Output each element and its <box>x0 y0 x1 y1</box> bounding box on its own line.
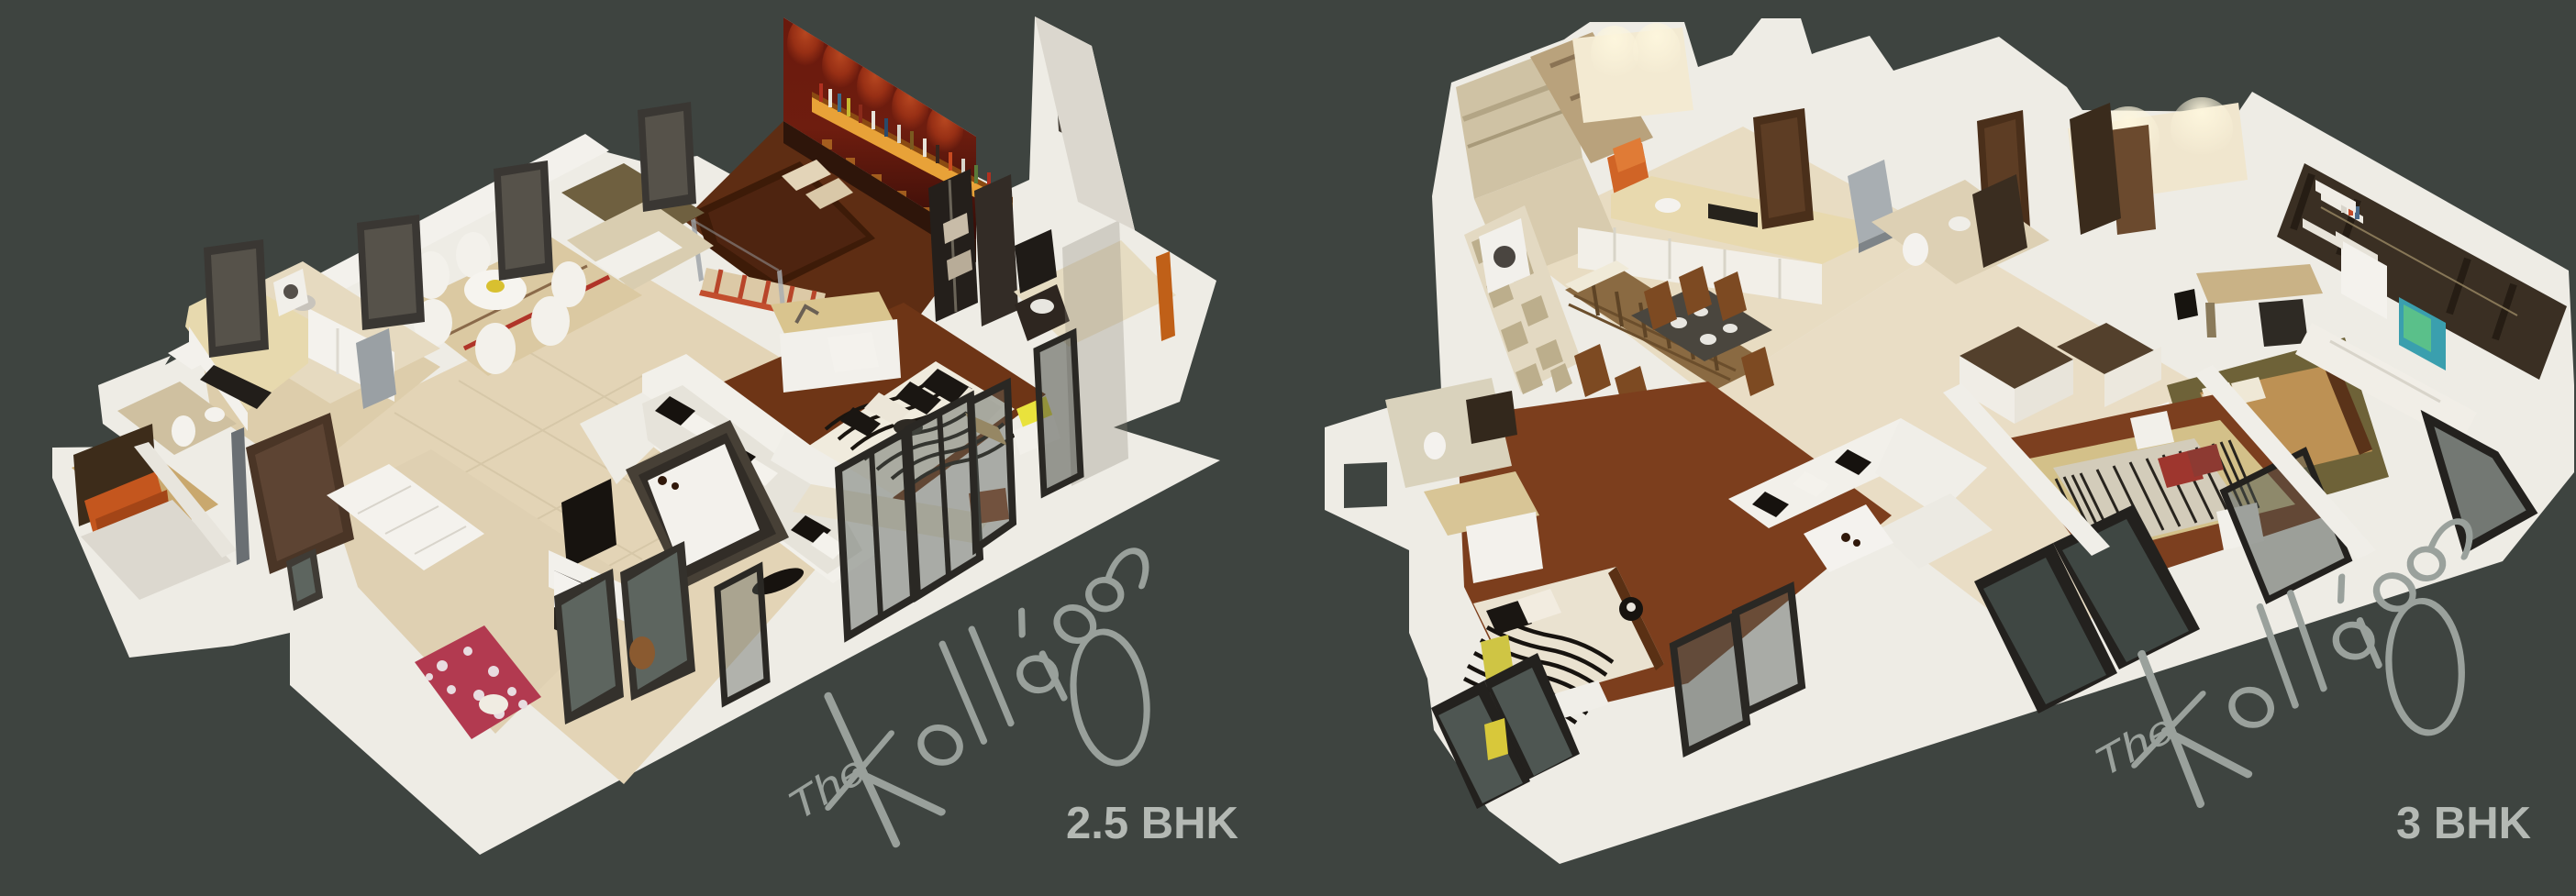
svg-text:2.5 BHK: 2.5 BHK <box>1066 799 1238 848</box>
svg-text:3 BHK: 3 BHK <box>2396 799 2531 848</box>
